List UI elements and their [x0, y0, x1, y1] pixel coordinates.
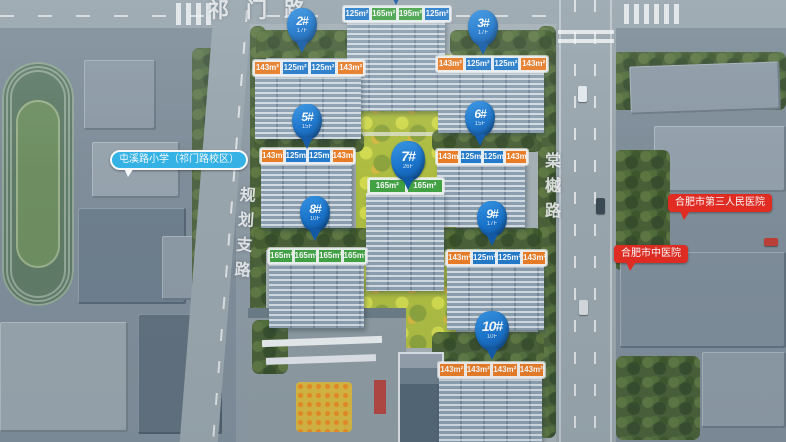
building-1-tags: 125m² 165m² 195m² 125m² [343, 6, 451, 22]
area-tag: 143m² [437, 57, 464, 71]
pin-building-1-tip[interactable] [390, 0, 402, 5]
area-tag: 165m² [318, 249, 342, 263]
pin-balloon: 7# 26F [391, 141, 425, 181]
pin-tail-icon [309, 229, 321, 241]
site-plan: 125m² 165m² 195m² 125m² 2# 17F 143m² 125… [0, 0, 786, 442]
building-3-tags: 143m² 125m² 125m² 143m² [436, 56, 548, 72]
area-tag: 143m² [447, 251, 471, 265]
pin-balloon: 2# 17F [287, 8, 317, 44]
area-tag: 125m² [465, 57, 492, 71]
pin-tail-icon [486, 234, 498, 246]
area-tag: 165m² [371, 7, 397, 21]
area-tag: 125m² [310, 61, 337, 75]
landmark-school-tail-icon [124, 168, 134, 177]
building-6-tags: 143m² 125m² 125m² 143m² [436, 149, 528, 165]
landmark-hospital-tcm[interactable]: 合肥市中医院 [614, 245, 688, 263]
pin-label: 2# [287, 8, 317, 28]
area-tag: 125m² [308, 149, 331, 163]
play-yard [296, 382, 352, 432]
area-tag: 143m² [520, 57, 547, 71]
pin-label: 7# [391, 141, 425, 164]
tree-band [450, 30, 554, 56]
car [596, 198, 605, 214]
pin-balloon: 8# 10F [300, 196, 330, 232]
area-tag: 143m² [505, 150, 527, 164]
area-tag: 143m² [466, 363, 492, 377]
area-tag: 143m² [337, 61, 364, 75]
landmark-hospital-tcm-tail-icon [626, 262, 636, 271]
pin-tail-icon [402, 178, 414, 190]
area-tag: 143m² [439, 363, 465, 377]
road-tangyue [556, 0, 616, 442]
city-block [629, 61, 781, 114]
pin-building-10[interactable]: 10# 10F [475, 311, 509, 360]
pin-tail-icon [474, 134, 486, 146]
landmark-school[interactable]: 屯溪路小学（祁门路校区） [110, 150, 248, 170]
pin-label: 10# [475, 311, 509, 334]
area-tag: 143m² [437, 150, 459, 164]
building-2-tags: 143m² 125m² 125m² 143m² [253, 60, 365, 76]
city-block [0, 322, 128, 432]
pin-label: 6# [465, 101, 495, 121]
area-tag: 143m² [519, 363, 545, 377]
crosswalk [558, 30, 614, 46]
road-label-tangyue: 棠樾路 [538, 152, 562, 227]
lane-marking [594, 0, 596, 442]
area-tag: 125m² [282, 61, 309, 75]
area-tag: 165m² [294, 249, 318, 263]
pin-tail-icon [477, 43, 489, 55]
pin-tail-icon [486, 348, 498, 360]
area-tag: 143m² [522, 251, 546, 265]
area-tag: 143m² [332, 149, 355, 163]
pin-building-8[interactable]: 8# 10F [300, 196, 330, 241]
area-tag: 125m² [493, 57, 520, 71]
pin-building-7[interactable]: 7# 26F [391, 141, 425, 190]
tree-band [616, 356, 700, 440]
building-10-facade [439, 377, 542, 442]
pin-label: 5# [292, 104, 322, 124]
area-tag: 195m² [398, 7, 424, 21]
area-tag: 125m² [460, 150, 482, 164]
area-tag: 125m² [483, 150, 505, 164]
area-tag: 125m² [344, 7, 370, 21]
pin-floors: 10F [300, 216, 330, 222]
pin-building-5[interactable]: 5# 15F [292, 104, 322, 149]
pin-balloon: 6# 15F [465, 101, 495, 137]
pin-building-2[interactable]: 2# 17F [287, 8, 317, 53]
lane-marking [610, 0, 612, 442]
pin-balloon: 5# 15F [292, 104, 322, 140]
crosswalk [624, 4, 684, 24]
landmark-hospital-third[interactable]: 合肥市第三人民医院 [668, 194, 772, 212]
building-9-tags: 143m² 125m² 125m² 143m² [446, 250, 547, 266]
pin-tail-icon [301, 137, 313, 149]
building-5-tags: 143m² 125m² 125m² 143m² [260, 148, 355, 164]
building-8-facade [269, 262, 364, 328]
city-block [84, 60, 156, 130]
pin-label: 9# [477, 201, 507, 221]
area-tag: 125m² [424, 7, 450, 21]
pin-floors: 10F [475, 334, 509, 340]
pin-floors: 17F [468, 30, 498, 36]
area-tag: 125m² [497, 251, 521, 265]
landmark-hospital-third-tail-icon [680, 211, 690, 220]
pin-balloon: 9# 17F [477, 201, 507, 237]
city-block [702, 352, 786, 428]
pin-floors: 26F [391, 164, 425, 170]
city-block [620, 252, 786, 348]
red-structure [374, 380, 386, 414]
car [764, 238, 778, 246]
area-tag: 165m² [269, 249, 293, 263]
area-tag: 143m² [261, 149, 284, 163]
pin-balloon: 3# 17F [468, 10, 498, 46]
pin-floors: 15F [292, 124, 322, 130]
city-block [654, 126, 786, 192]
pin-building-9[interactable]: 9# 17F [477, 201, 507, 246]
pin-floors: 15F [465, 121, 495, 127]
tree-band [252, 320, 288, 374]
lane-marking [574, 0, 576, 442]
building-8-tags: 165m² 165m² 165m² 165m² [268, 248, 367, 264]
car [578, 86, 587, 102]
area-tag: 143m² [492, 363, 518, 377]
pin-building-3[interactable]: 3# 17F [468, 10, 498, 55]
building-7-facade [366, 193, 444, 291]
pin-label: 8# [300, 196, 330, 216]
area-tag: 125m² [472, 251, 496, 265]
car [579, 300, 588, 315]
pin-floors: 17F [477, 221, 507, 227]
area-tag: 143m² [254, 61, 281, 75]
sports-field [16, 100, 60, 268]
pin-tail-icon [296, 41, 308, 53]
building-10-tags: 143m² 143m² 143m² 143m² [438, 362, 545, 378]
pin-building-6[interactable]: 6# 15F [465, 101, 495, 146]
area-tag: 165m² [343, 249, 367, 263]
pin-label: 3# [468, 10, 498, 30]
area-tag: 125m² [285, 149, 308, 163]
pin-floors: 17F [287, 28, 317, 34]
pin-balloon: 10# 10F [475, 311, 509, 351]
